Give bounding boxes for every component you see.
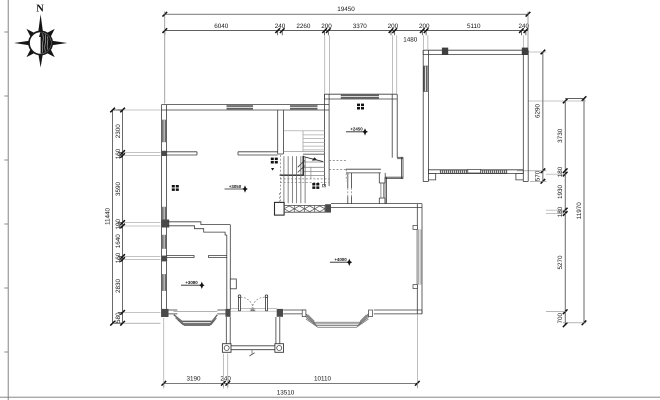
- svg-text:160: 160: [115, 148, 122, 159]
- svg-text:190: 190: [115, 218, 122, 229]
- svg-text:240: 240: [220, 375, 231, 382]
- svg-text:5110: 5110: [467, 23, 481, 30]
- svg-text:2260: 2260: [296, 23, 311, 30]
- svg-text:1930: 1930: [557, 185, 564, 200]
- svg-text:11970: 11970: [576, 202, 583, 220]
- svg-text:13510: 13510: [277, 390, 295, 397]
- svg-text:+3080: +3080: [185, 280, 198, 285]
- svg-text:6040: 6040: [214, 23, 229, 30]
- svg-text:11440: 11440: [105, 207, 112, 225]
- svg-text:6290: 6290: [535, 104, 542, 119]
- svg-text:1480: 1480: [403, 37, 418, 44]
- svg-text:10110: 10110: [314, 375, 332, 382]
- svg-text:N: N: [36, 3, 44, 14]
- svg-text:580: 580: [115, 312, 122, 323]
- svg-text:240: 240: [275, 23, 286, 30]
- svg-text:+3050: +3050: [229, 184, 242, 189]
- svg-text:19450: 19450: [337, 6, 355, 13]
- svg-text:5270: 5270: [557, 255, 564, 270]
- svg-text:3590: 3590: [115, 182, 122, 197]
- svg-text:3370: 3370: [353, 23, 368, 30]
- svg-text:3190: 3190: [186, 375, 201, 382]
- svg-text:200: 200: [321, 23, 332, 30]
- svg-text:3730: 3730: [557, 128, 564, 143]
- svg-text:1640: 1640: [115, 234, 122, 249]
- svg-text:700: 700: [557, 312, 564, 323]
- svg-text:200: 200: [419, 23, 430, 30]
- svg-text:160: 160: [115, 252, 122, 263]
- svg-text:570: 570: [535, 170, 542, 181]
- svg-text:200: 200: [388, 23, 399, 30]
- svg-text:+4000: +4000: [334, 257, 347, 262]
- svg-text:2300: 2300: [115, 124, 122, 139]
- svg-text:180: 180: [557, 166, 564, 177]
- svg-text:+2450: +2450: [350, 127, 363, 132]
- svg-text:180: 180: [557, 206, 564, 217]
- svg-text:2830: 2830: [115, 279, 122, 294]
